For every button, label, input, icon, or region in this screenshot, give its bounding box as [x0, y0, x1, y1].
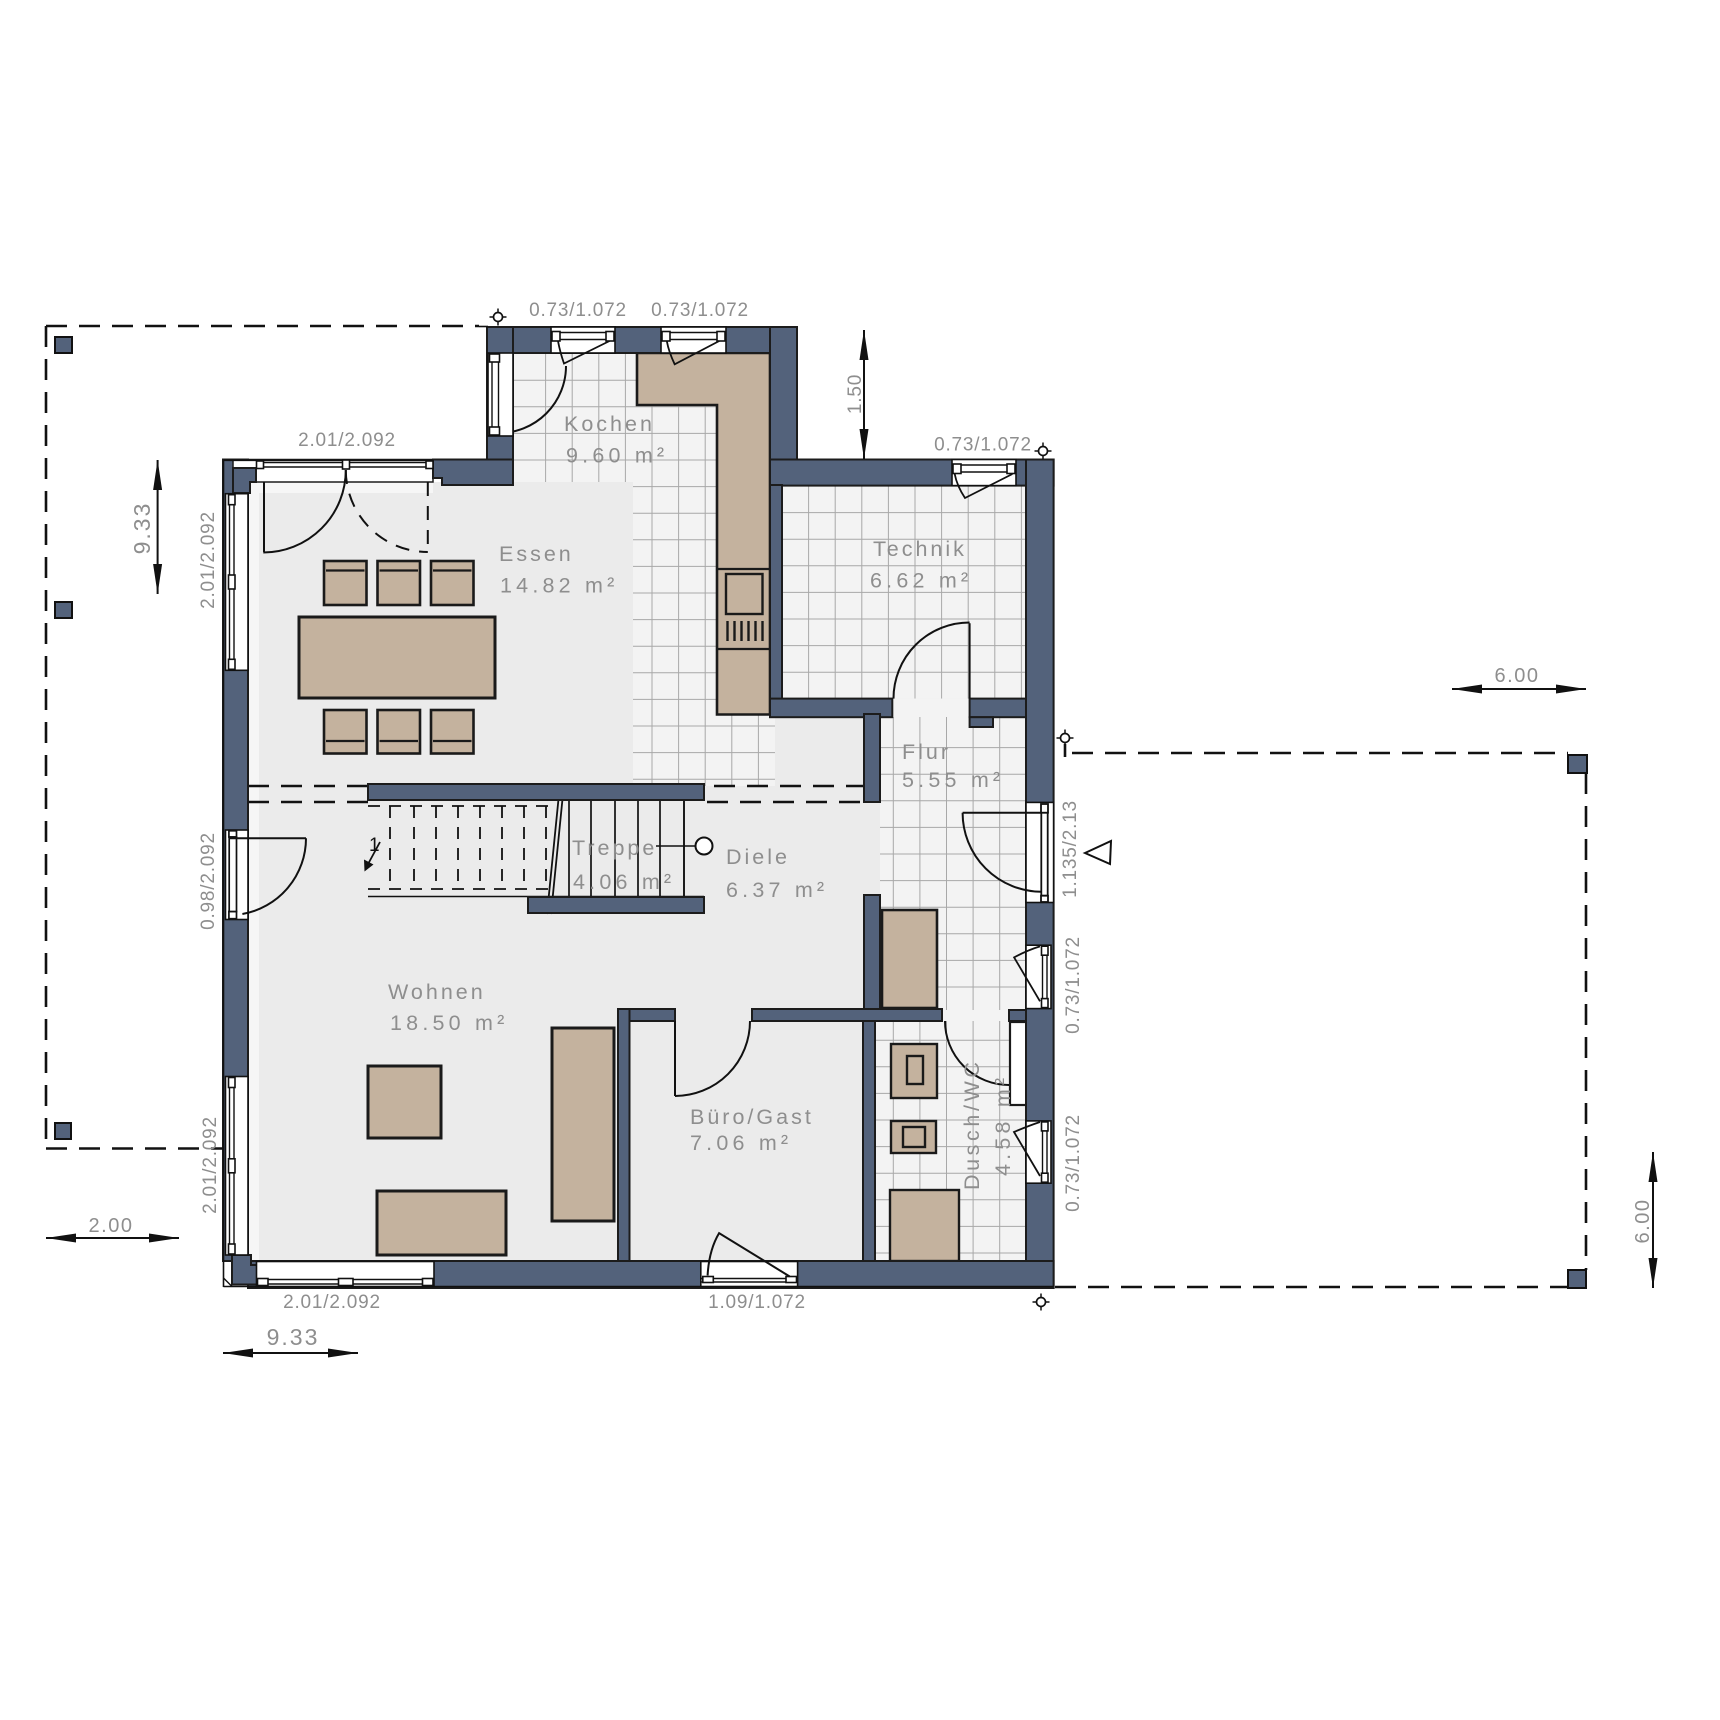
- svg-text:9.33: 9.33: [267, 1324, 320, 1350]
- svg-text:6.00: 6.00: [1632, 1199, 1654, 1244]
- svg-text:2.01/2.092: 2.01/2.092: [283, 1292, 381, 1313]
- svg-text:Wohnen: Wohnen: [388, 980, 486, 1004]
- svg-text:2.01/2.092: 2.01/2.092: [198, 511, 219, 609]
- svg-text:18.50 m²: 18.50 m²: [390, 1011, 508, 1035]
- svg-text:Kochen: Kochen: [564, 412, 655, 436]
- svg-text:0.98/2.092: 0.98/2.092: [198, 832, 219, 930]
- svg-text:0.73/1.072: 0.73/1.072: [529, 300, 627, 321]
- svg-text:Diele: Diele: [726, 845, 790, 869]
- svg-text:1.50: 1.50: [845, 374, 866, 414]
- svg-text:2.01/2.092: 2.01/2.092: [298, 430, 396, 451]
- svg-text:0.73/1.072: 0.73/1.072: [1063, 936, 1084, 1034]
- svg-text:2.01/2.092: 2.01/2.092: [200, 1116, 221, 1214]
- svg-text:Flur: Flur: [902, 740, 951, 764]
- svg-text:14.82 m²: 14.82 m²: [500, 574, 618, 598]
- svg-text:2.00: 2.00: [89, 1215, 134, 1237]
- svg-text:Büro/Gast: Büro/Gast: [690, 1105, 814, 1129]
- svg-text:7.06 m²: 7.06 m²: [690, 1131, 792, 1155]
- svg-text:6.62 m²: 6.62 m²: [870, 569, 972, 593]
- svg-text:9.60 m²: 9.60 m²: [566, 444, 668, 468]
- svg-text:Treppe: Treppe: [572, 836, 657, 860]
- svg-text:Dusch/WC: Dusch/WC: [960, 1058, 984, 1190]
- svg-text:4.06 m²: 4.06 m²: [573, 870, 675, 894]
- svg-text:4.58 m²: 4.58 m²: [991, 1074, 1015, 1176]
- svg-text:1.09/1.072: 1.09/1.072: [708, 1292, 806, 1313]
- svg-text:6.00: 6.00: [1495, 665, 1540, 687]
- svg-text:0.73/1.072: 0.73/1.072: [934, 435, 1032, 456]
- svg-text:Technik: Technik: [873, 537, 967, 561]
- svg-text:0.73/1.072: 0.73/1.072: [651, 300, 749, 321]
- svg-text:Essen: Essen: [499, 542, 574, 566]
- svg-text:0.73/1.072: 0.73/1.072: [1063, 1114, 1084, 1212]
- svg-text:6.37 m²: 6.37 m²: [726, 878, 828, 902]
- svg-text:9.33: 9.33: [129, 502, 155, 555]
- svg-text:1.135/2.13: 1.135/2.13: [1060, 800, 1081, 898]
- svg-text:5.55 m²: 5.55 m²: [902, 768, 1004, 792]
